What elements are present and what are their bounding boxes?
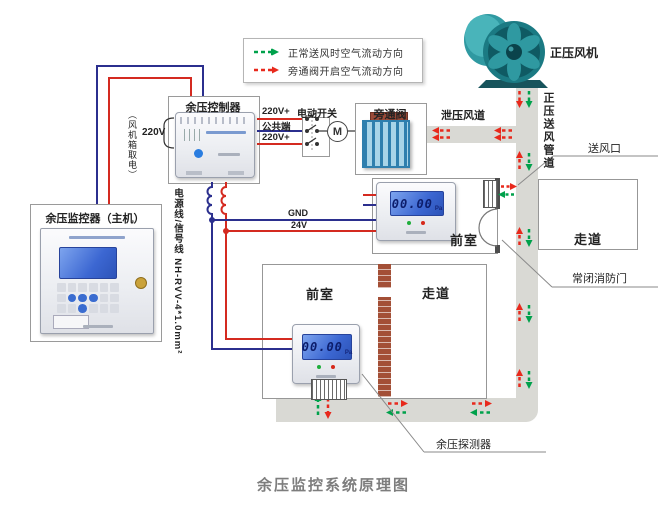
air-outlet-grille (483, 180, 498, 208)
wire-220v-plus-bottom-label: 220V+ (262, 132, 290, 143)
wire-common-label: 公共端 (262, 119, 291, 133)
wire-24v-label: 24V (291, 220, 307, 230)
upper-detector-brand-bar (406, 231, 426, 234)
upper-corridor-label: 走道 (574, 229, 602, 248)
supply-duct-label: 正压送风管道 (540, 92, 556, 182)
fire-door-label: 常闭消防门 (572, 270, 627, 286)
upper-detector-lcd: 00.00 Pa (390, 191, 444, 216)
lower-detector-green-led (317, 365, 321, 369)
monitor-lcd-screen (59, 247, 117, 279)
electric-switch-label: 电动开关 (297, 105, 337, 120)
controller-terminal-strip (180, 117, 250, 124)
legend-bypass-flow-label: 旁通阀开启空气流动方向 (288, 63, 404, 78)
lower-detector-lcd-unit: Pa (345, 350, 352, 356)
lower-pressure-detector-device: 00.00 Pa (292, 324, 360, 384)
upper-detector-green-led (407, 221, 411, 225)
fan-label: 正压风机 (550, 44, 598, 61)
monitor-name-label: 余压监控器（主机） (30, 210, 160, 226)
pressure-controller-device (175, 112, 255, 178)
controller-name-label: 余压控制器 (168, 99, 258, 115)
monitor-model-text-bar (69, 236, 125, 239)
lower-corridor-label: 走道 (422, 283, 450, 302)
monitor-lock[interactable] (135, 277, 147, 289)
lower-detector-red-led (331, 365, 335, 369)
monitor-brand-bar (83, 325, 113, 328)
upper-detector-red-led (421, 221, 425, 225)
lower-detector-brand-bar (316, 375, 336, 378)
upper-detector-lcd-unit: Pa (435, 206, 442, 212)
cable-spec-note: 电源线/信号线 NH-RVV-4*1.0mm² (170, 188, 184, 356)
wire-220v-plus-top-label: 220V+ (262, 106, 290, 117)
damper-slats (362, 120, 410, 168)
lower-front-room-label: 前室 (306, 284, 334, 303)
detector-label: 余压探测器 (436, 436, 491, 452)
controller-din-tab-left (186, 171, 202, 175)
upper-detector-lcd-value: 00.00 (392, 197, 433, 211)
controller-button[interactable] (194, 149, 203, 158)
pressure-fan-illustration (460, 10, 560, 95)
fan-box-power-note: （风机箱取电） (126, 110, 139, 210)
monitor-keypad[interactable] (57, 283, 119, 313)
legend-green-arrow-icon (252, 48, 282, 56)
motor-symbol: M (327, 121, 348, 142)
legend-normal-flow-label: 正常送风时空气流动方向 (288, 45, 404, 60)
controller-terminal-icons (184, 129, 202, 141)
pressure-monitor-host-device (40, 228, 154, 334)
lower-room-grille (311, 379, 347, 400)
power-220v-label: 220V (142, 127, 165, 138)
upper-pressure-detector-device: 00.00 Pa (376, 182, 456, 241)
legend-box: 正常送风时空气流动方向 旁通阀开启空气流动方向 (243, 38, 423, 83)
legend-red-arrow-icon (252, 66, 282, 74)
lower-detector-lcd: 00.00 Pa (302, 334, 352, 360)
lower-detector-lcd-value: 00.00 (302, 340, 343, 354)
upper-front-room-label: 前室 (450, 230, 478, 249)
controller-din-tab-right (228, 171, 244, 175)
schematic-canvas: 正常送风时空气流动方向 旁通阀开启空气流动方向 (0, 0, 667, 511)
air-outlet-label: 送风口 (588, 140, 621, 156)
controller-brand-bar (218, 153, 240, 156)
relief-duct-label: 泄压风道 (441, 107, 485, 123)
bypass-valve-label: 旁通阀 (355, 106, 425, 122)
wire-gnd-label: GND (288, 208, 308, 218)
controller-model-text-bar (206, 131, 246, 134)
